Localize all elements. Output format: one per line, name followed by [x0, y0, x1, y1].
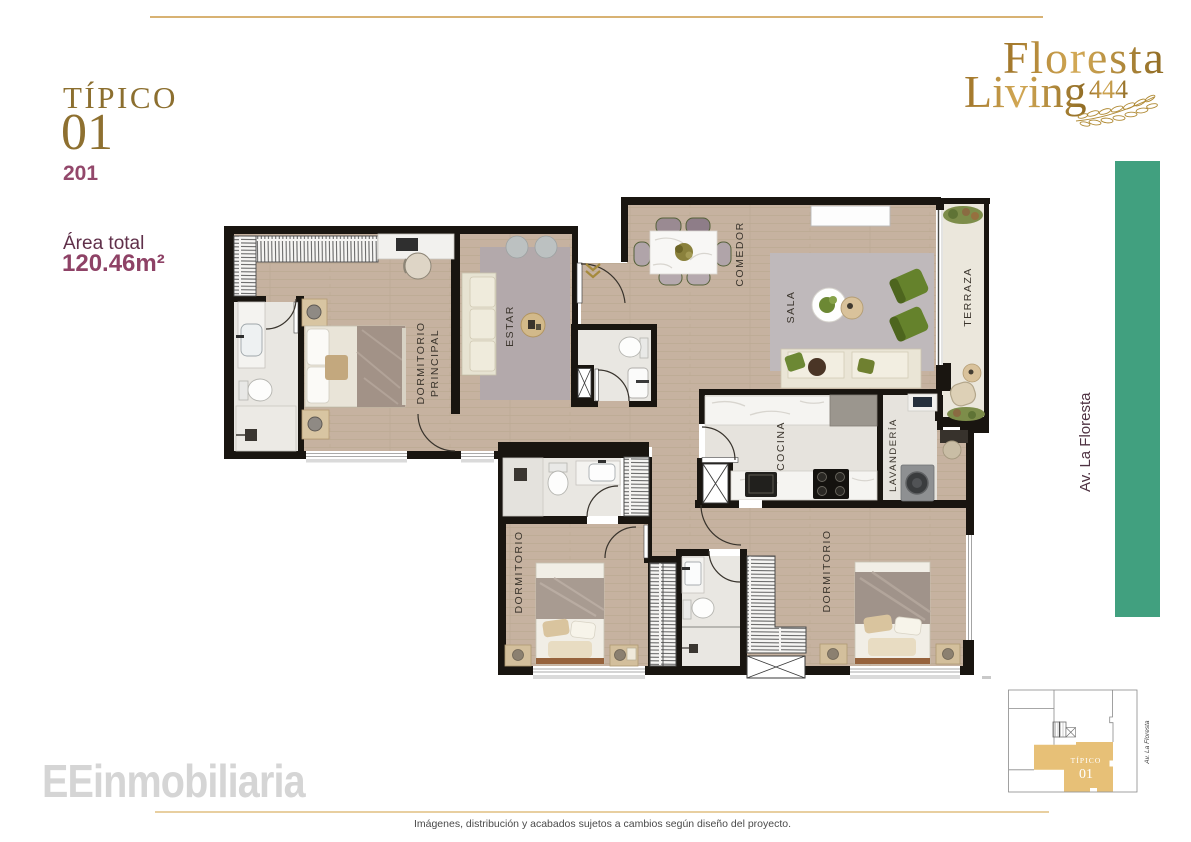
- svg-text:COCINA: COCINA: [775, 421, 787, 471]
- svg-text:COMEDOR: COMEDOR: [734, 221, 746, 286]
- svg-text:Av. La Floresta: Av. La Floresta: [1144, 720, 1151, 764]
- svg-text:DORMITORIO: DORMITORIO: [415, 321, 427, 404]
- svg-text:DORMITORIO: DORMITORIO: [821, 529, 833, 612]
- svg-text:01: 01: [1079, 767, 1093, 782]
- svg-text:DORMITORIO: DORMITORIO: [513, 530, 525, 613]
- svg-text:LAVANDERÍA: LAVANDERÍA: [888, 418, 899, 492]
- svg-text:PRINCIPAL: PRINCIPAL: [429, 329, 441, 397]
- svg-text:ESTAR: ESTAR: [504, 305, 516, 347]
- svg-text:SALA: SALA: [785, 291, 797, 324]
- svg-text:TÍPICO: TÍPICO: [1071, 755, 1102, 765]
- svg-text:TERRAZA: TERRAZA: [962, 267, 974, 327]
